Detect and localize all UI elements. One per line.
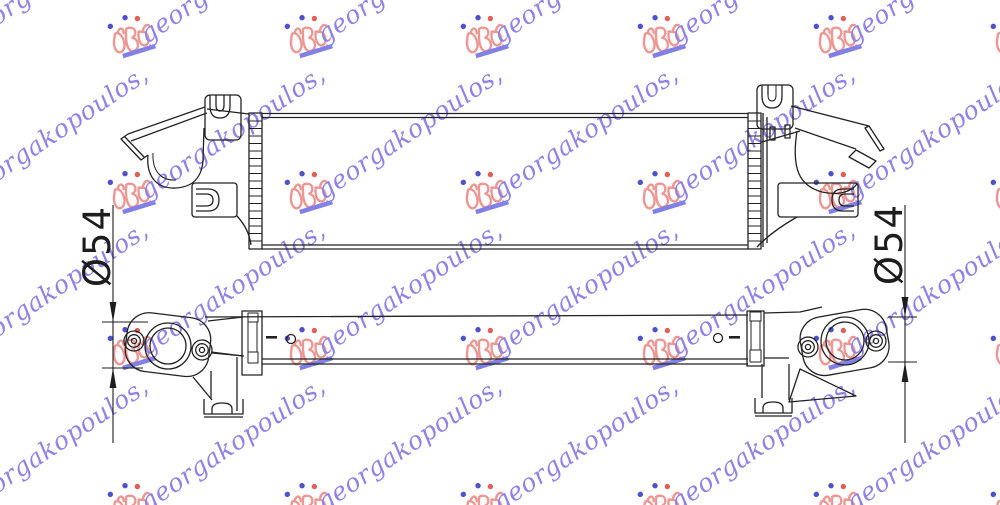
tube-mark-dash-right xyxy=(729,336,740,339)
tube-mark-dash-left xyxy=(266,336,277,339)
dimension-label-left: Ø54 xyxy=(76,205,119,287)
parts-diagram-canvas: georgakopoulos, xyxy=(0,0,1000,505)
dimension-label-right: Ø54 xyxy=(868,203,911,285)
